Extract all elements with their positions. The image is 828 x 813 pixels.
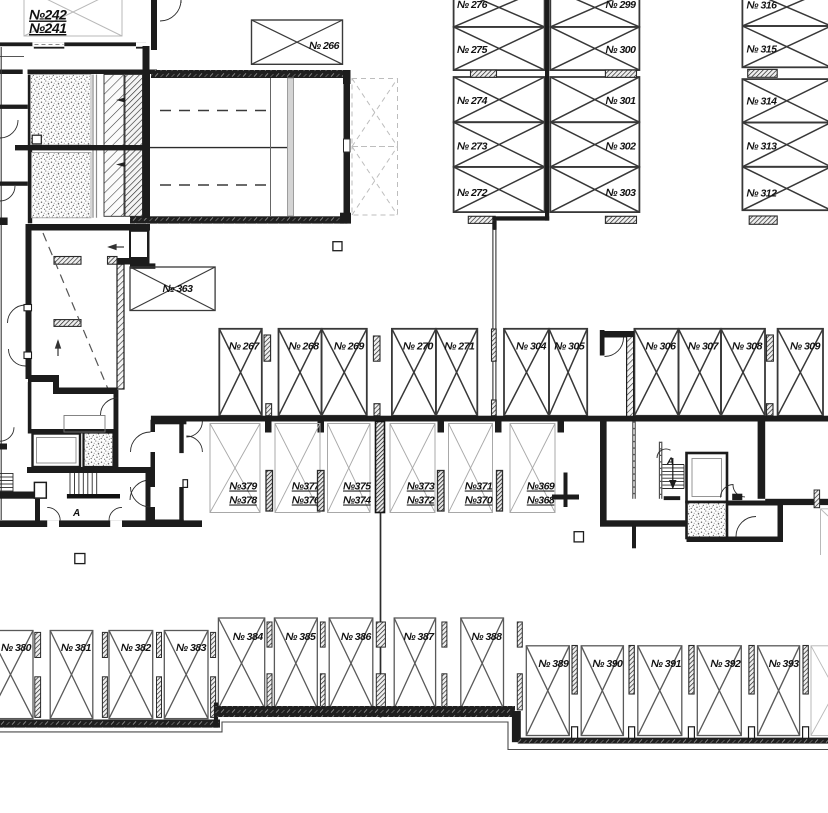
svg-text:№ 386: № 386 [341, 631, 372, 643]
svg-text:№ 315: № 315 [747, 44, 778, 56]
svg-text:№ 384: № 384 [233, 631, 264, 643]
svg-text:№375: №375 [343, 481, 371, 493]
svg-text:№ 267: № 267 [229, 341, 261, 353]
svg-text:№ 275: № 275 [457, 44, 488, 56]
svg-text:№ 302: № 302 [606, 141, 637, 153]
svg-text:№ 380: № 380 [1, 642, 32, 654]
svg-text:№373: №373 [407, 481, 435, 493]
svg-text:№379: №379 [229, 481, 257, 493]
svg-text:№ 387: № 387 [404, 631, 436, 643]
svg-text:№ 392: № 392 [710, 658, 741, 670]
svg-text:№ 304: № 304 [516, 341, 547, 353]
svg-text:№ 312: № 312 [747, 188, 778, 200]
svg-text:№ 308: № 308 [732, 341, 763, 353]
svg-text:№ 383: № 383 [176, 642, 207, 654]
svg-text:№ 272: № 272 [457, 187, 488, 199]
svg-text:№ 385: № 385 [285, 631, 316, 643]
svg-text:А: А [666, 456, 674, 467]
svg-text:№ 270: № 270 [403, 341, 434, 353]
svg-text:А: А [72, 508, 80, 519]
svg-text:№ 301: № 301 [606, 95, 637, 107]
svg-text:№378: №378 [229, 495, 257, 507]
svg-text:№370: №370 [465, 495, 493, 507]
svg-text:№ 273: № 273 [457, 141, 488, 153]
svg-text:№ 390: № 390 [592, 658, 623, 670]
svg-text:№377: №377 [292, 481, 321, 493]
svg-text:№ 305: № 305 [554, 341, 585, 353]
svg-text:№376: №376 [292, 495, 320, 507]
svg-text:№ 382: № 382 [121, 642, 152, 654]
svg-text:№ 316: № 316 [747, 0, 778, 12]
svg-text:№ 307: № 307 [688, 341, 720, 353]
svg-text:№ 381: № 381 [61, 642, 92, 654]
svg-text:№ 299: № 299 [606, 0, 637, 11]
svg-text:№ 389: № 389 [538, 658, 569, 670]
svg-text:№ 276: № 276 [457, 0, 488, 11]
svg-text:№ 363: № 363 [163, 283, 194, 295]
svg-text:№ 388: № 388 [472, 631, 503, 643]
svg-text:№371: №371 [465, 481, 493, 493]
svg-text:№ 300: № 300 [606, 44, 637, 56]
svg-text:№368: №368 [527, 495, 555, 507]
svg-text:№ 303: № 303 [606, 187, 637, 199]
svg-text:№241: №241 [29, 20, 67, 36]
svg-text:№369: №369 [527, 481, 555, 493]
svg-text:№ 271: № 271 [444, 341, 475, 353]
svg-text:№ 309: № 309 [790, 341, 821, 353]
svg-text:№ 266: № 266 [309, 40, 340, 52]
svg-text:№372: №372 [407, 495, 435, 507]
svg-text:№ 314: № 314 [747, 96, 778, 108]
svg-text:№ 393: № 393 [769, 658, 800, 670]
svg-text:№ 306: № 306 [646, 341, 677, 353]
svg-text:№374: №374 [343, 495, 371, 507]
svg-text:№ 269: № 269 [334, 341, 365, 353]
svg-text:№ 391: № 391 [651, 658, 682, 670]
svg-text:№ 274: № 274 [457, 95, 488, 107]
svg-text:№ 313: № 313 [747, 141, 778, 153]
svg-text:№ 268: № 268 [289, 341, 320, 353]
